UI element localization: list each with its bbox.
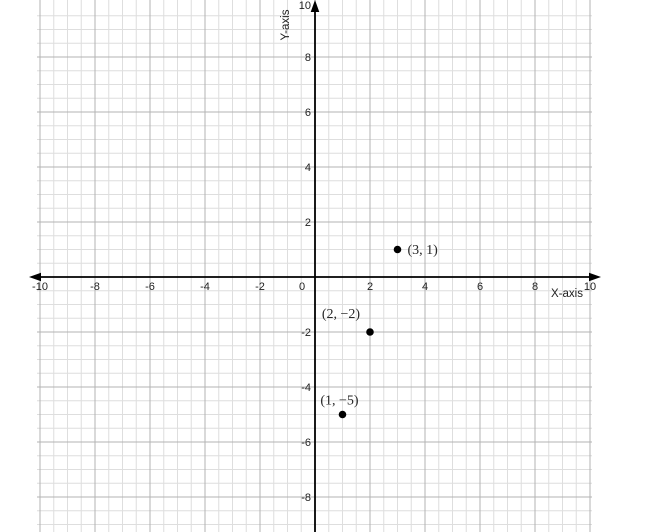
x-tick-label: 4 [422, 281, 428, 293]
x-axis-arrow-right-icon [589, 273, 601, 282]
y-tick-label: -8 [301, 492, 311, 504]
y-tick-label: 10 [299, 0, 311, 12]
data-point [339, 411, 347, 419]
data-point [366, 328, 374, 336]
x-axis-arrow-left-icon [29, 273, 41, 282]
y-tick-label: -4 [301, 382, 311, 394]
x-tick-label: 2 [367, 281, 373, 293]
y-tick-label: 6 [305, 107, 311, 119]
data-point [394, 246, 402, 254]
plot-canvas: -10-8-6-4-20246810108642-2-4-6-8(3, 1)(2… [0, 0, 661, 532]
point-label: (2, −2) [322, 307, 361, 322]
point-label: (1, −5) [320, 394, 359, 409]
x-tick-label: -10 [32, 281, 48, 293]
x-tick-label: -2 [255, 281, 265, 293]
x-tick-label: -4 [200, 281, 210, 293]
y-tick-label: 2 [305, 217, 311, 229]
y-tick-label: -6 [301, 437, 311, 449]
y-axis-arrow-top-icon [311, 0, 320, 12]
x-tick-label: -6 [145, 281, 155, 293]
point-label: (3, 1) [408, 243, 439, 258]
x-tick-label: 6 [477, 281, 483, 293]
x-axis-label: X-axis [551, 288, 595, 301]
y-tick-label: 4 [305, 162, 311, 174]
y-tick-label: 8 [305, 52, 311, 64]
x-tick-label: 0 [299, 281, 305, 293]
x-tick-label: -8 [90, 281, 100, 293]
y-axis-label: Y-axis [280, 0, 294, 53]
coordinate-plane: -10-8-6-4-20246810108642-2-4-6-8(3, 1)(2… [0, 0, 661, 532]
x-tick-label: 8 [532, 281, 538, 293]
y-tick-label: -2 [301, 327, 311, 339]
